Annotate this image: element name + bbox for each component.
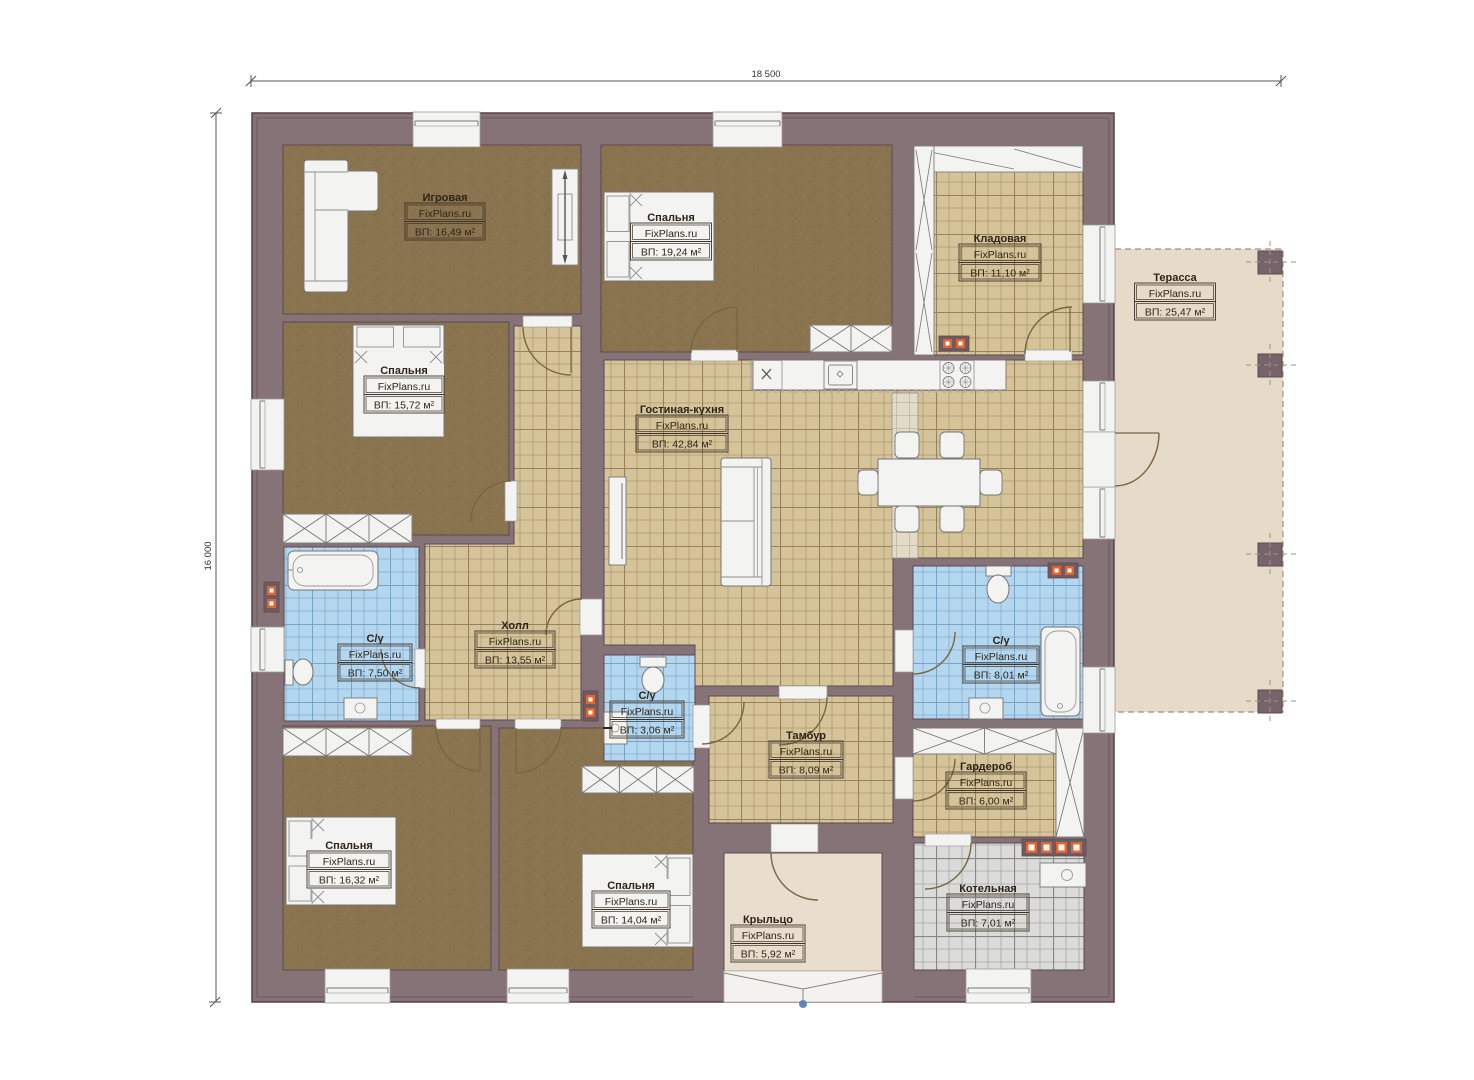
- svg-text:FixPlans.ru: FixPlans.ru: [645, 228, 698, 240]
- svg-text:18 500: 18 500: [751, 69, 780, 80]
- svg-text:FixPlans.ru: FixPlans.ru: [323, 856, 376, 868]
- svg-text:ВП: 3,06 м²: ВП: 3,06 м²: [620, 725, 675, 737]
- svg-text:Спальня: Спальня: [325, 840, 373, 852]
- svg-text:С/у: С/у: [366, 633, 384, 645]
- svg-text:FixPlans.ru: FixPlans.ru: [975, 651, 1028, 663]
- svg-text:Терасса: Терасса: [1153, 272, 1197, 284]
- svg-text:С/у: С/у: [638, 690, 656, 702]
- svg-text:FixPlans.ru: FixPlans.ru: [349, 649, 402, 661]
- svg-text:16 000: 16 000: [203, 541, 214, 570]
- svg-text:FixPlans.ru: FixPlans.ru: [621, 706, 674, 718]
- svg-text:Тамбур: Тамбур: [786, 730, 826, 742]
- svg-text:FixPlans.ru: FixPlans.ru: [962, 899, 1015, 911]
- svg-text:Кладовая: Кладовая: [974, 233, 1027, 245]
- svg-text:Гардероб: Гардероб: [960, 761, 1012, 773]
- svg-text:FixPlans.ru: FixPlans.ru: [1149, 288, 1202, 300]
- svg-text:ВП: 16,32 м²: ВП: 16,32 м²: [319, 875, 380, 887]
- svg-text:ВП: 13,55 м²: ВП: 13,55 м²: [485, 655, 546, 667]
- svg-text:FixPlans.ru: FixPlans.ru: [960, 777, 1013, 789]
- svg-text:FixPlans.ru: FixPlans.ru: [378, 381, 431, 393]
- svg-text:Игровая: Игровая: [422, 192, 467, 204]
- svg-text:FixPlans.ru: FixPlans.ru: [419, 208, 472, 220]
- svg-text:ВП: 19,24 м²: ВП: 19,24 м²: [641, 247, 702, 259]
- svg-text:Спальня: Спальня: [607, 880, 655, 892]
- svg-text:ВП: 16,49 м²: ВП: 16,49 м²: [415, 227, 476, 239]
- svg-text:FixPlans.ru: FixPlans.ru: [742, 930, 795, 942]
- svg-text:Котельная: Котельная: [959, 883, 1017, 895]
- svg-text:ВП: 7,01 м²: ВП: 7,01 м²: [961, 918, 1016, 930]
- svg-text:FixPlans.ru: FixPlans.ru: [605, 896, 658, 908]
- svg-text:С/у: С/у: [992, 635, 1010, 647]
- svg-text:Холл: Холл: [501, 620, 529, 632]
- svg-text:FixPlans.ru: FixPlans.ru: [974, 249, 1027, 261]
- svg-text:ВП: 8,09 м²: ВП: 8,09 м²: [779, 765, 834, 777]
- svg-text:FixPlans.ru: FixPlans.ru: [489, 636, 542, 648]
- svg-text:ВП: 5,92 м²: ВП: 5,92 м²: [741, 949, 796, 961]
- svg-text:Спальня: Спальня: [380, 365, 428, 377]
- svg-text:FixPlans.ru: FixPlans.ru: [780, 746, 833, 758]
- svg-text:ВП: 11,10 м²: ВП: 11,10 м²: [970, 268, 1030, 280]
- svg-text:Спальня: Спальня: [647, 212, 695, 224]
- svg-text:Крыльцо: Крыльцо: [743, 914, 793, 926]
- svg-text:Гостиная-кухня: Гостиная-кухня: [640, 404, 724, 416]
- svg-text:ВП: 6,00 м²: ВП: 6,00 м²: [959, 796, 1014, 808]
- svg-text:ВП: 8,01 м²: ВП: 8,01 м²: [974, 670, 1029, 682]
- svg-text:ВП: 15,72 м²: ВП: 15,72 м²: [374, 400, 435, 412]
- svg-text:ВП: 7,50 м²: ВП: 7,50 м²: [348, 668, 403, 680]
- svg-text:ВП: 42,84 м²: ВП: 42,84 м²: [652, 439, 713, 451]
- svg-text:ВП: 25,47 м²: ВП: 25,47 м²: [1145, 307, 1206, 319]
- svg-text:ВП: 14,04 м²: ВП: 14,04 м²: [601, 915, 662, 927]
- svg-text:FixPlans.ru: FixPlans.ru: [656, 420, 709, 432]
